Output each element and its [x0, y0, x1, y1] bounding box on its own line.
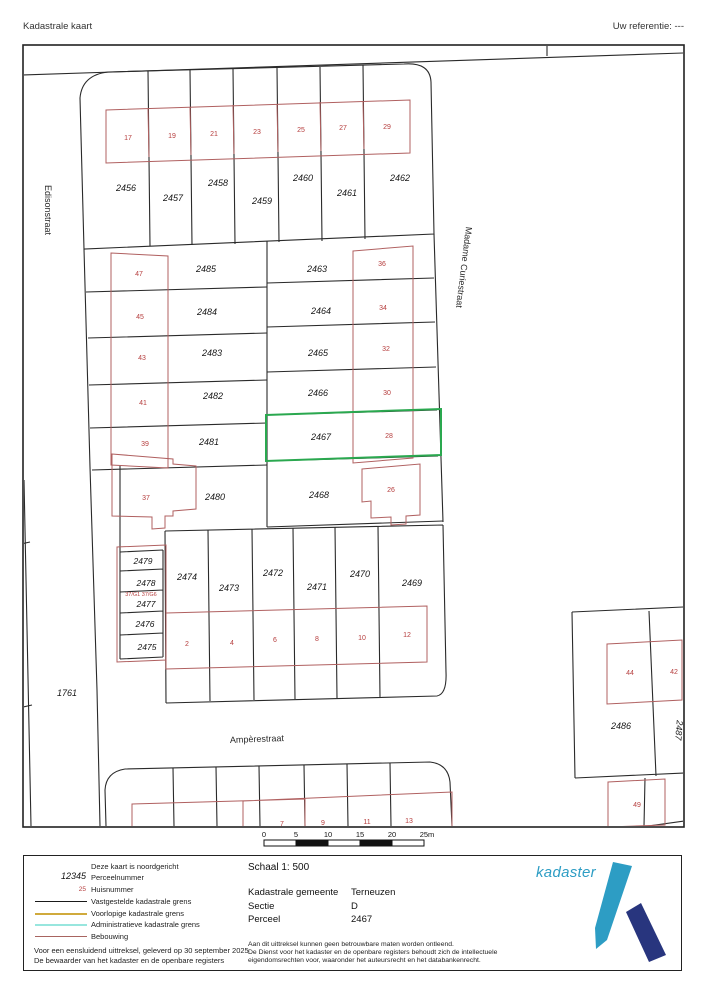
info-field-label: Kadastrale gemeente: [248, 887, 338, 898]
parcel-label: 2464: [310, 306, 331, 316]
house-number-sample: 25: [36, 886, 86, 893]
disclaimer-line: Aan dit uittreksel kunnen geen betrouwba…: [248, 941, 454, 948]
parcel-label: 2473: [218, 583, 239, 593]
parcel-label: 2476: [135, 619, 155, 629]
parcel-label: 2483: [201, 348, 222, 358]
parcel-label: 2486: [610, 721, 631, 731]
house-number: 26: [387, 487, 395, 494]
parcel-label: 2463: [306, 264, 327, 274]
info-field-value: Terneuzen: [351, 887, 395, 898]
street-label-amperestraat: Ampèrestraat: [230, 733, 285, 745]
scale-text: Schaal 1: 500: [248, 862, 309, 873]
house-number: 47: [135, 271, 143, 278]
parcel-label: 2484: [196, 307, 217, 317]
house-number: 34: [379, 305, 387, 312]
parcel-label: 2481: [198, 437, 219, 447]
parcel-label: 2485: [195, 264, 217, 274]
house-number: 19: [168, 133, 176, 140]
house-number: 25: [297, 127, 305, 134]
house-number: 21: [210, 131, 218, 138]
parcel-label: 2469: [401, 578, 422, 588]
scale-bar: 0 5 10 15 20 25m: [262, 830, 434, 846]
parcel-label: 2462: [389, 173, 410, 183]
house-number: 37: [142, 495, 150, 502]
legend-item-label: Administratieve kadastrale grens: [91, 920, 200, 929]
house-number: 36: [378, 261, 386, 268]
house-number: 29: [383, 124, 391, 131]
parcel-number-sample: 12345: [36, 871, 86, 881]
house-number-labels: 17 19 21 23 25 27 29 47 45 43 41 39 36 3…: [124, 124, 678, 828]
house-number: 49: [633, 802, 641, 809]
house-number: 9: [321, 820, 325, 827]
parcel-label: 1761: [57, 688, 77, 698]
kadaster-logo-icon: [584, 858, 694, 968]
house-number: 39: [141, 441, 149, 448]
legend-panel: Deze kaart is noordgericht 12345 Perceel…: [23, 855, 682, 971]
house-number: 27: [339, 125, 347, 132]
street-label-madame-curiestraat: Madame Curiestraat: [454, 226, 474, 309]
parcel-label: 2477: [136, 599, 156, 609]
garage-annotation: 37/G1 37/G6: [125, 592, 157, 598]
parcel-label: 2460: [292, 173, 313, 183]
house-number: 13: [405, 818, 413, 825]
house-number: 23: [253, 129, 261, 136]
parcel-label: 2459: [251, 196, 272, 206]
parcel-label: 2479: [133, 556, 153, 566]
house-number: 43: [138, 355, 146, 362]
house-number: 30: [383, 390, 391, 397]
parcel-label: 2482: [202, 391, 223, 401]
scale-tick-label: 0: [262, 830, 266, 839]
building-outlines: [106, 100, 682, 827]
cadastral-extract-page: Kadastrale kaart Uw referentie: ---: [0, 0, 707, 999]
parcel-label: 2475: [137, 642, 157, 652]
parcel-label: 2487: [673, 719, 685, 742]
certification-line: Voor een eensluidend uittreksel, gelever…: [34, 946, 249, 955]
parcel-label: 2468: [308, 490, 329, 500]
parcel-label: 2478: [136, 578, 156, 588]
disclaimer-line: De Dienst voor het kadaster en de openba…: [248, 949, 497, 956]
house-number: 12: [403, 632, 411, 639]
parcel-label: 2456: [115, 183, 136, 193]
parcel-label: 2457: [162, 193, 184, 203]
legend-item-label: Vastgestelde kadastrale grens: [91, 897, 191, 906]
administrative-boundary-swatch: [35, 924, 87, 926]
parcel-label: 2458: [207, 178, 228, 188]
selected-parcel-label: 2467: [310, 432, 332, 442]
street-label-edisonstraat: Edisonstraat: [43, 185, 53, 236]
house-number: 8: [315, 636, 319, 643]
cadastral-map: Edisonstraat Madame Curiestraat Ampèrest…: [0, 0, 707, 999]
legend-item-label: Bebouwing: [91, 932, 128, 941]
legend-item-label: Perceelnummer: [91, 873, 144, 882]
legend-item-label: Deze kaart is noordgericht: [91, 862, 179, 871]
scale-tick-label: 5: [294, 830, 298, 839]
scale-tick-label: 25m: [420, 830, 435, 839]
scale-tick-label: 15: [356, 830, 364, 839]
house-number: 6: [273, 637, 277, 644]
parcel-label: 2472: [262, 568, 283, 578]
parcel-label: 2480: [204, 492, 225, 502]
house-number: 2: [185, 641, 189, 648]
parcel-label: 2466: [307, 388, 328, 398]
info-field-value: D: [351, 901, 358, 912]
parcel-label: 2471: [306, 582, 327, 592]
parcel-label: 2470: [349, 569, 370, 579]
house-number: 11: [363, 819, 370, 826]
certification-line: De bewaarder van het kadaster en de open…: [34, 956, 224, 965]
parcel-label: 2474: [176, 572, 197, 582]
house-number: 44: [626, 670, 634, 677]
legend-item-label: Voorlopige kadastrale grens: [91, 909, 184, 918]
building-swatch: [35, 936, 87, 937]
info-field-label: Perceel: [248, 914, 280, 925]
house-number: 45: [136, 314, 144, 321]
house-number: 28: [385, 433, 393, 440]
legend-item-label: Huisnummer: [91, 885, 134, 894]
scale-tick-label: 20: [388, 830, 396, 839]
house-number: 4: [230, 640, 234, 647]
house-number: 41: [139, 400, 147, 407]
established-boundary-swatch: [35, 901, 87, 902]
disclaimer-line: eigendomsrechten voor, waaronder het aut…: [248, 957, 481, 964]
house-number: 32: [382, 346, 390, 353]
info-field-value: 2467: [351, 914, 372, 925]
parcel-label: 2465: [307, 348, 329, 358]
provisional-boundary-swatch: [35, 913, 87, 915]
scale-tick-label: 10: [324, 830, 332, 839]
info-field-label: Sectie: [248, 901, 274, 912]
house-number: 10: [358, 635, 366, 642]
house-number: 17: [124, 135, 132, 142]
parcel-label: 2461: [336, 188, 357, 198]
house-number: 42: [670, 669, 678, 676]
